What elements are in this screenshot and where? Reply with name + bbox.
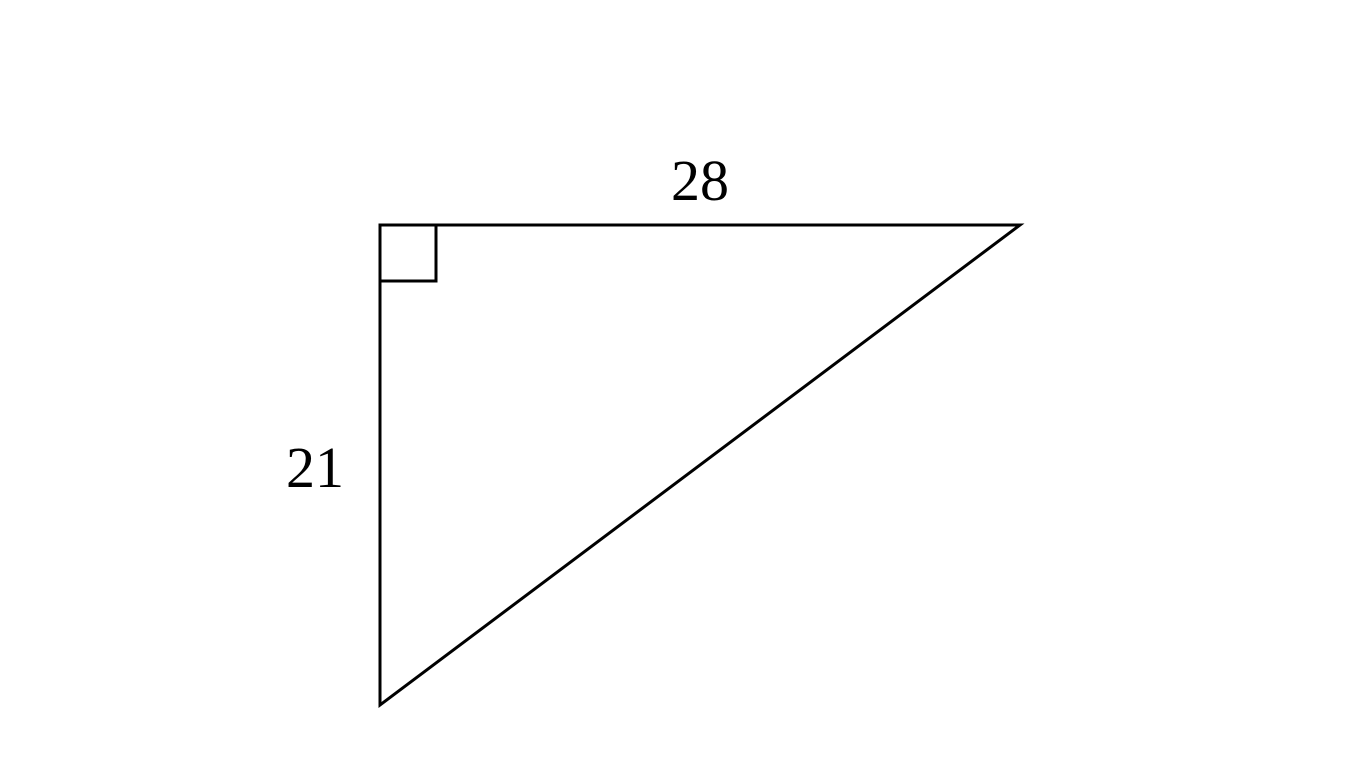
diagram-canvas: 28 21: [0, 0, 1366, 768]
right-angle-marker: [380, 225, 436, 281]
right-triangle-figure: 28 21: [0, 0, 1366, 768]
left-side-length-label: 21: [286, 435, 344, 500]
triangle-outline: [380, 225, 1020, 705]
top-side-length-label: 28: [671, 148, 729, 213]
